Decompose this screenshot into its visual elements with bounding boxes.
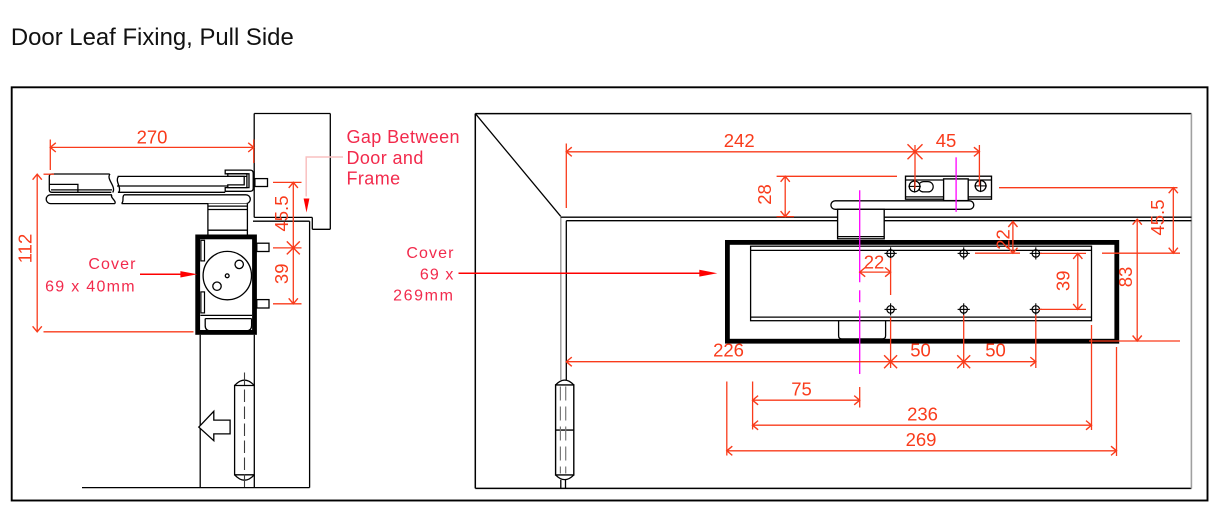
svg-text:226: 226: [713, 340, 744, 361]
svg-text:83: 83: [1115, 267, 1136, 288]
svg-text:69 x: 69 x: [420, 267, 455, 284]
svg-text:45.5: 45.5: [271, 195, 292, 231]
svg-text:50: 50: [985, 340, 1006, 361]
svg-text:Cover: Cover: [406, 245, 454, 262]
svg-text:242: 242: [724, 130, 755, 151]
svg-text:45: 45: [936, 130, 957, 151]
svg-text:75: 75: [791, 379, 812, 400]
svg-text:28: 28: [754, 184, 775, 205]
svg-text:Cover: Cover: [88, 256, 136, 273]
svg-text:Door Leaf Fixing, Pull Side: Door Leaf Fixing, Pull Side: [11, 24, 294, 51]
svg-text:269: 269: [906, 429, 937, 450]
svg-text:Gap Between: Gap Between: [347, 127, 460, 147]
svg-text:Frame: Frame: [347, 169, 401, 189]
svg-text:22: 22: [993, 229, 1014, 250]
svg-text:50: 50: [910, 340, 931, 361]
svg-text:22: 22: [864, 251, 885, 272]
svg-text:236: 236: [907, 404, 938, 425]
svg-text:69 x 40mm: 69 x 40mm: [45, 278, 136, 295]
svg-text:Door and: Door and: [347, 148, 424, 168]
svg-text:45.5: 45.5: [1147, 199, 1168, 235]
svg-text:112: 112: [15, 234, 36, 264]
svg-text:270: 270: [137, 126, 168, 147]
svg-text:39: 39: [1053, 271, 1074, 292]
svg-text:269mm: 269mm: [393, 288, 454, 305]
svg-text:39: 39: [271, 264, 292, 285]
